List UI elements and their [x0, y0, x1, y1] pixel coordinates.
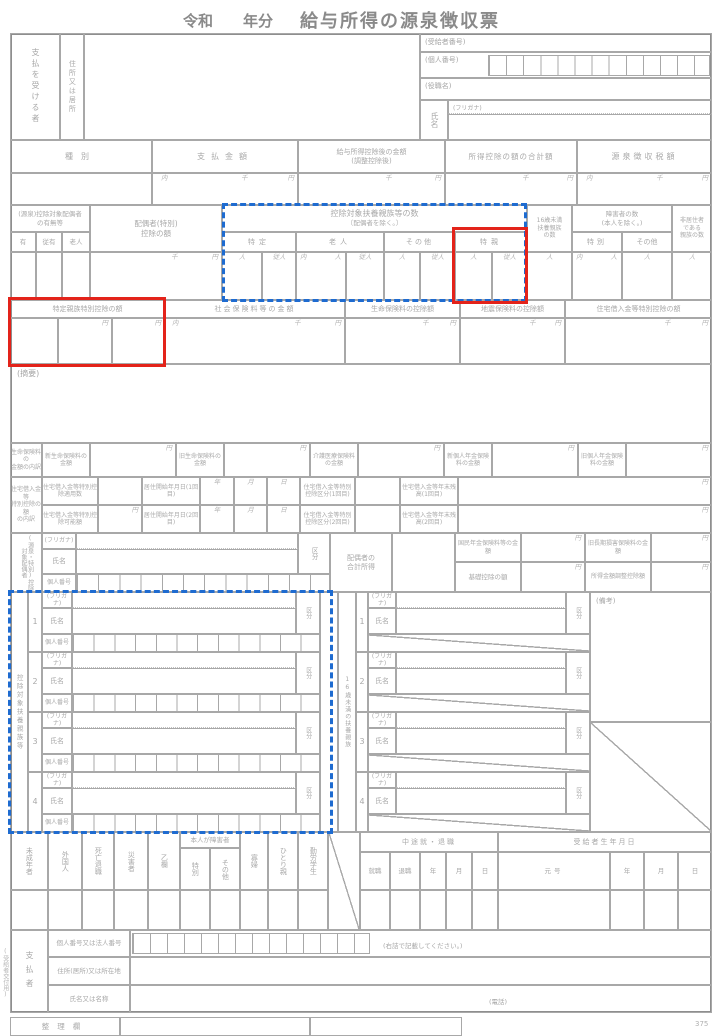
housing-balance2-cell[interactable]: 円 [458, 505, 712, 533]
payer-name-field[interactable]: (電話) [130, 985, 712, 1013]
flag-disaster-cell[interactable] [114, 890, 148, 930]
remarks-label: (摘要) [17, 368, 39, 379]
sen-marker: 千 [171, 254, 178, 261]
spouse-personal-no-digits[interactable] [76, 574, 330, 592]
new-annuity-insurance-cell[interactable]: 円 [492, 443, 578, 477]
dependent-count-header: 控除対象扶養親族等の数 〔配偶者を除く。〕 [222, 205, 527, 232]
flag-widow-cell[interactable] [240, 890, 268, 930]
under16-row-num: 1 [356, 592, 368, 652]
housing-kubun2-label: 住宅借入金等特別控除区分(2回目) [300, 505, 355, 533]
nin-marker: 人 [611, 254, 618, 261]
midway-day-cell[interactable] [472, 890, 498, 930]
spouse-presence-line2: の有無等 [37, 219, 63, 227]
page-title: 給与所得の源泉徴収票 [300, 7, 500, 33]
uchi-marker: 内 [300, 254, 307, 261]
nin-marker: 人 [399, 254, 406, 261]
nonresident-count-cell[interactable]: 人 [672, 252, 712, 300]
yen-marker: 円 [702, 564, 709, 571]
old-annuity-insurance-cell[interactable]: 円 [626, 443, 712, 477]
yen-marker: 円 [102, 320, 109, 327]
payer-number-digits[interactable] [132, 933, 370, 954]
spouse-total-income-label: 配偶者の 合計所得 [330, 533, 392, 592]
flag-working-student-cell[interactable] [298, 890, 328, 930]
nin-marker: 人 [689, 254, 696, 261]
yen-marker: 円 [335, 320, 342, 327]
disabled-line2: (本人を除く。) [602, 219, 643, 227]
under16-row-num: 3 [356, 712, 368, 772]
junin-marker: 従人 [503, 254, 516, 261]
under16-count-cell[interactable]: 人 [527, 252, 572, 300]
midway-retired-cell[interactable] [390, 890, 420, 930]
housing-balance1-cell[interactable]: 円 [458, 477, 712, 505]
sen-marker: 千 [385, 175, 392, 182]
under16-name-label: 氏名 [368, 728, 396, 754]
uchi-marker: 内 [161, 175, 168, 182]
under16-kubun-cell[interactable]: 区分 [566, 712, 590, 754]
under16-name-field[interactable] [396, 788, 566, 814]
old-longterm-insurance-cell[interactable]: 円 [651, 533, 712, 562]
yen-marker: 円 [435, 175, 442, 182]
tokutei-shinzoku-deduction-cell1[interactable] [10, 318, 58, 364]
flag-self-disabled-tokubetsu-cell[interactable] [180, 890, 210, 930]
dependent-furigana-field[interactable] [72, 592, 296, 608]
payer-number-note: (右詰で記載してください。) [383, 940, 462, 950]
col-withholding-header: 源泉徴収税額 [577, 140, 712, 173]
dependent-personal-no-digits[interactable] [72, 754, 320, 772]
housing-side-line1: 住宅借入金等 [11, 486, 41, 501]
yen-marker: 円 [450, 320, 457, 327]
residence1-month-cell[interactable]: 月 [234, 477, 267, 505]
remarks-area[interactable]: (摘要) [10, 364, 712, 443]
payee-furigana-field[interactable]: (フリガナ) [448, 100, 712, 114]
under16-name-field[interactable] [396, 668, 566, 694]
type-value-cell[interactable] [10, 173, 152, 205]
uchi-marker: 内 [576, 254, 583, 261]
flag-death-retirement-label: 死亡退職 [82, 832, 114, 890]
flag-minor-label: 未成年者 [10, 832, 48, 890]
payee-side-label: 支払を受ける者 [10, 33, 60, 140]
payment-value-cell[interactable]: 内 千 円 [152, 173, 298, 205]
housing-breakdown-side: 住宅借入金等 特別控除の額 の内訳 [10, 477, 42, 533]
dependent-personal-no-label: 個人番号 [42, 694, 72, 712]
housing-possible-amount-label: 住宅借入金等特別控除可能額 [42, 505, 98, 533]
dependent-row-num: 2 [28, 652, 42, 712]
dependent-furigana-field[interactable] [72, 712, 296, 728]
personal-number-digits[interactable] [488, 55, 710, 76]
uchi-marker: 内 [586, 175, 593, 182]
payer-number-label: 個人番号又は法人番号 [48, 930, 130, 957]
withholding-value-cell[interactable]: 内 千 円 [577, 173, 712, 205]
tokutei-shinzoku-deduction-cell2[interactable]: 円 [58, 318, 112, 364]
national-pension-label: 国民年金保険料等の金額 [455, 533, 521, 562]
recipient-number-label: (受給者番号) [425, 37, 465, 47]
dependent-kubun-cell[interactable]: 区分 [296, 652, 320, 694]
dependents-gap-column [320, 592, 338, 832]
under16-line1: 16歳未満 [537, 217, 563, 225]
spouse-total-income-cell[interactable] [392, 533, 455, 592]
sonota-junin-cell[interactable]: 従人 [420, 252, 455, 300]
biko-label: (備考) [596, 596, 615, 606]
disabled-tokubetsu-cell[interactable]: 内 人 [572, 252, 622, 300]
junin-marker: 従人 [359, 254, 372, 261]
housing-loan-deduction-header: 住宅借入金等特別控除の額 [565, 300, 712, 318]
form-code: 375 [695, 1020, 708, 1028]
nin-marker: 人 [644, 254, 651, 261]
spouse-juyu-cell[interactable] [36, 252, 62, 300]
dependent-kubun-cell[interactable]: 区分 [296, 772, 320, 814]
yen-marker: 円 [702, 535, 709, 542]
spouse-name-field[interactable] [76, 549, 298, 574]
col-type-header: 種別 [10, 140, 152, 173]
dependent-row-num: 3 [28, 712, 42, 772]
flag-otsuran-cell[interactable] [148, 890, 180, 930]
tokutei-shinzoku-nin-cell[interactable]: 人 [455, 252, 492, 300]
dependent-personal-no-digits[interactable] [72, 634, 320, 652]
under16-name-label: 氏名 [368, 608, 396, 634]
nonresident-line3: 親族の数 [680, 232, 704, 240]
national-pension-cell[interactable]: 円 [521, 533, 585, 562]
housing-loan-deduction-cell[interactable]: 千 円 [565, 318, 712, 364]
tokutei-junin-cell[interactable]: 従人 [262, 252, 296, 300]
birthdate-year-cell[interactable] [610, 890, 644, 930]
birthdate-month-label: 月 [644, 852, 678, 890]
spouse-kubun-cell[interactable]: 区分 [298, 533, 330, 574]
new-annuity-insurance-label: 新個人年金保険料の金額 [444, 443, 492, 477]
housing-possible-amount-cell[interactable]: 円 [98, 505, 142, 533]
dependent-furigana-field[interactable] [72, 772, 296, 788]
day-marker: 日 [280, 479, 287, 486]
disabled-sonota-label: その他 [622, 232, 672, 252]
flag-death-retirement-cell[interactable] [82, 890, 114, 930]
disabled-count-header: 障害者の数 (本人を除く。) [572, 205, 672, 232]
spouse-deduction-line2: 控除の額 [141, 229, 171, 238]
sonota-col-label: その他 [384, 232, 455, 252]
col-after-deduction-header: 給与所得控除後の金額 (調整控除後) [298, 140, 445, 173]
birthdate-year-label: 年 [610, 852, 644, 890]
old-life-insurance-label: 旧生命保険料の金額 [176, 443, 224, 477]
under16-furigana-field[interactable] [396, 712, 566, 728]
spouse-detail-side: (源泉・特別)控除対象配偶者 [10, 533, 42, 592]
role-label: (役職名) [425, 81, 451, 91]
social-insurance-header: 社会保険料等の金額 [165, 300, 345, 318]
seiri-cell-2[interactable] [310, 1017, 462, 1036]
midway-header: 中途就・退職 [360, 832, 498, 852]
residence-start-date1-label: 居住開始年月日(1回目) [142, 477, 200, 505]
residence2-month-cell[interactable]: 月 [234, 505, 267, 533]
housing-side-line2: 特別控除の額 [11, 501, 41, 516]
year-marker: 年 [214, 507, 221, 514]
sen-marker: 千 [241, 175, 248, 182]
birthdate-day-label: 日 [678, 852, 712, 890]
spouse-name-label: 氏名 [42, 549, 76, 574]
birthdate-month-cell[interactable] [644, 890, 678, 930]
biko-area[interactable]: (備考) [590, 592, 712, 722]
flag-self-disabled-header: 本人が障害者 [180, 832, 240, 848]
dependent-kubun-cell[interactable]: 区分 [296, 592, 320, 634]
life-insurance-breakdown-side: 生命保険料の 金額の内訳 [10, 443, 42, 477]
midway-month-cell[interactable] [446, 890, 472, 930]
spouse-deduction-value-cell[interactable]: 千 円 [90, 252, 222, 300]
yen-marker: 円 [434, 445, 441, 452]
dependent-name-label: 氏名 [42, 728, 72, 754]
birthdate-header: 受給者生年月日 [498, 832, 712, 852]
yen-marker: 円 [300, 445, 307, 452]
dependent-count-subtitle: 〔配偶者を除く。〕 [347, 219, 402, 227]
under16-name-field[interactable] [396, 608, 566, 634]
birthdate-era-label: 元号 [498, 852, 610, 890]
under16-furigana-label: (フリガナ) [368, 592, 396, 608]
rojin-label: 老人 [62, 232, 90, 252]
payer-name-label: 氏名又は名称 [48, 985, 130, 1013]
dependent-furigana-label: (フリガナ) [42, 652, 72, 668]
dependent-name-field[interactable] [72, 728, 296, 754]
dependent-name-field[interactable] [72, 788, 296, 814]
new-life-insurance-cell[interactable]: 円 [90, 443, 176, 477]
payee-name-field[interactable] [448, 114, 712, 140]
yen-marker: 円 [702, 175, 709, 182]
junin-marker: 従人 [431, 254, 444, 261]
care-medical-insurance-label: 介護医療保険料の金額 [310, 443, 358, 477]
dependent-name-label: 氏名 [42, 788, 72, 814]
yen-marker: 円 [555, 320, 562, 327]
yen-marker: 円 [568, 445, 575, 452]
payer-address-field[interactable] [130, 957, 712, 985]
uchi-marker: 内 [172, 320, 179, 327]
under16-row-num: 4 [356, 772, 368, 832]
under16-furigana-label: (フリガナ) [368, 712, 396, 728]
housing-side-line3: の内訳 [17, 516, 35, 524]
flag-foreigner-cell[interactable] [48, 890, 82, 930]
under16-furigana-field[interactable] [396, 772, 566, 788]
residence-start-date2-label: 居住開始年月日(2回目) [142, 505, 200, 533]
dependent-name-label: 氏名 [42, 668, 72, 694]
payer-tel-label: (電話) [489, 996, 507, 1006]
flag-disaster-label: 災害者 [114, 832, 148, 890]
nonresident-line1: 非居住者 [680, 217, 704, 225]
day-marker: 日 [280, 507, 287, 514]
recipient-number-field[interactable]: (受給者番号) [420, 33, 712, 52]
yu-label: 有 [10, 232, 36, 252]
role-field[interactable]: (役職名) [420, 78, 712, 100]
dependent-personal-no-digits[interactable] [72, 694, 320, 712]
sen-marker: 千 [522, 175, 529, 182]
flag-working-student-label: 勤労学生 [298, 832, 328, 890]
yen-marker: 円 [702, 479, 709, 486]
dependent-name-field[interactable] [72, 608, 296, 634]
dependents-side-label: 控除対象扶養親族等 [10, 592, 28, 832]
personal-number-label: (個人番号) [425, 55, 458, 65]
under16-furigana-field[interactable] [396, 592, 566, 608]
payee-furigana-label: (フリガナ) [453, 103, 482, 112]
disabled-sonota-cell[interactable]: 人 [622, 252, 672, 300]
old-annuity-insurance-label: 旧個人年金保険料の金額 [578, 443, 626, 477]
basic-deduction-label: 基礎控除の額 [455, 562, 521, 592]
dependent-name-label: 氏名 [42, 608, 72, 634]
old-longterm-insurance-label: 旧長期損害保険料の金額 [585, 533, 651, 562]
yen-marker: 円 [702, 445, 709, 452]
yen-marker: 円 [288, 175, 295, 182]
tokutei-shinzoku-col-label: 特親 [455, 232, 527, 252]
spouse-presence-line1: (源泉)控除対象配偶者 [18, 210, 82, 218]
nin-marker: 人 [546, 254, 553, 261]
after-deduction-value-cell[interactable]: 千 円 [298, 173, 445, 205]
juyu-label: 従有 [36, 232, 62, 252]
copy-note: (受給者交付用) [0, 933, 10, 1013]
title-era: 令和 [183, 10, 213, 31]
flag-otsuran-label: 乙欄 [148, 832, 180, 890]
housing-apply-count-cell[interactable] [98, 477, 142, 505]
residence1-day-cell[interactable]: 日 [267, 477, 300, 505]
birthdate-day-cell[interactable] [678, 890, 712, 930]
flag-single-parent-cell[interactable] [268, 890, 298, 930]
residence1-year-cell[interactable]: 年 [200, 477, 234, 505]
yen-marker: 円 [702, 507, 709, 514]
flag-self-disabled-sonota-cell[interactable] [210, 890, 240, 930]
crossed-corner-cell [590, 722, 712, 832]
tokutei-shinzoku-deduction-header: 特定親族特別控除の額 [10, 300, 165, 318]
dependent-furigana-field[interactable] [72, 652, 296, 668]
flag-self-disabled-tokubetsu: 特別 [180, 848, 210, 890]
spouse-personal-no-label: 個人番号 [42, 574, 76, 592]
payer-side-label: 支払者 [10, 930, 48, 1013]
under16-row-num: 2 [356, 652, 368, 712]
sen-marker: 千 [422, 320, 429, 327]
rojin-junin-cell[interactable]: 従人 [346, 252, 384, 300]
flags-crossed-cell [328, 832, 360, 930]
yen-marker: 円 [155, 320, 162, 327]
under16-crossed-cell [368, 634, 590, 652]
yen-marker: 円 [567, 175, 574, 182]
spouse-presence-header: (源泉)控除対象配偶者 の有無等 [10, 205, 90, 232]
payee-address-field[interactable] [84, 33, 420, 140]
housing-kubun2-cell[interactable] [355, 505, 400, 533]
midway-day-label: 日 [472, 852, 498, 890]
under16-crossed-cell [368, 694, 590, 712]
spouse-furigana-label: (フリガナ) [42, 533, 76, 549]
earthquake-insurance-cell[interactable]: 千 円 [460, 318, 565, 364]
flag-foreigner-label: 外国人 [48, 832, 82, 890]
midway-month-label: 月 [446, 852, 472, 890]
title-year-suffix: 年分 [243, 10, 273, 31]
payer-address-label: 住所(居所)又は所在地 [48, 957, 130, 985]
yen-marker: 円 [212, 254, 219, 261]
dependent-personal-no-label: 個人番号 [42, 754, 72, 772]
nin-marker: 人 [239, 254, 246, 261]
dependent-furigana-label: (フリガナ) [42, 592, 72, 608]
birthdate-era-cell[interactable] [498, 890, 610, 930]
yen-marker: 円 [575, 564, 582, 571]
care-medical-insurance-cell[interactable]: 円 [358, 443, 444, 477]
rojin-nin-cell[interactable]: 内 人 [296, 252, 346, 300]
rojin-col-label: 老人 [296, 232, 384, 252]
residence2-year-cell[interactable]: 年 [200, 505, 234, 533]
housing-kubun1-label: 住宅借入金等特別控除区分(1回目) [300, 477, 355, 505]
nin-marker: 人 [470, 254, 477, 261]
under16-furigana-field[interactable] [396, 652, 566, 668]
under16-name-label: 氏名 [368, 668, 396, 694]
new-life-insurance-label: 新生命保険料の金額 [42, 443, 90, 477]
midway-joined-cell[interactable] [360, 890, 390, 930]
old-life-insurance-cell[interactable]: 円 [224, 443, 310, 477]
spouse-yu-cell[interactable] [10, 252, 36, 300]
dependent-furigana-label: (フリガナ) [42, 772, 72, 788]
dependent-personal-no-label: 個人番号 [42, 814, 72, 832]
nin-marker: 人 [335, 254, 342, 261]
spouse-rojin-cell[interactable] [62, 252, 90, 300]
under16-name-field[interactable] [396, 728, 566, 754]
sen-marker: 千 [294, 320, 301, 327]
residence2-day-cell[interactable]: 日 [267, 505, 300, 533]
life-breakdown-line2: 金額の内訳 [11, 464, 41, 472]
under16-line3: の数 [543, 232, 555, 240]
yen-marker: 円 [702, 320, 709, 327]
income-adjustment-cell[interactable]: 円 [651, 562, 712, 592]
life-breakdown-line1: 生命保険料の [11, 449, 41, 464]
junin-marker: 従人 [273, 254, 286, 261]
under16-kubun-cell[interactable]: 区分 [566, 652, 590, 694]
after-deduction-line1: 給与所得控除後の金額 [337, 148, 407, 157]
payee-address-label: 住所又は居所 [60, 33, 84, 140]
after-deduction-line2: (調整控除後) [351, 157, 391, 166]
tokutei-shinzoku-deduction-cell3[interactable]: 円 [112, 318, 165, 364]
spouse-furigana-field[interactable] [76, 533, 298, 549]
sen-marker: 千 [664, 320, 671, 327]
midway-year-label: 年 [420, 852, 446, 890]
under16-name-label: 氏名 [368, 788, 396, 814]
income-adjustment-label: 所得金額調整控除額 [585, 562, 651, 592]
flag-widow-label: 寡婦 [240, 832, 268, 890]
tokutei-nin-cell[interactable]: 人 [222, 252, 262, 300]
tokutei-shinzoku-junin-cell[interactable]: 従人 [492, 252, 527, 300]
col-total-deduction-header: 所得控除の額の合計額 [445, 140, 577, 173]
disabled-line1: 障害者の数 [606, 210, 639, 218]
yen-marker: 円 [166, 445, 173, 452]
under16-furigana-label: (フリガナ) [368, 652, 396, 668]
under16-furigana-label: (フリガナ) [368, 772, 396, 788]
basic-deduction-cell[interactable]: 円 [521, 562, 585, 592]
dependent-row-num: 1 [28, 592, 42, 652]
dependent-name-field[interactable] [72, 668, 296, 694]
dependent-kubun-cell[interactable]: 区分 [296, 712, 320, 754]
under16-header: 16歳未満 扶養親族 の数 [527, 205, 572, 252]
month-marker: 月 [247, 507, 254, 514]
housing-kubun1-cell[interactable] [355, 477, 400, 505]
total-deduction-value-cell[interactable]: 千 円 [445, 173, 577, 205]
life-insurance-deduction-cell[interactable]: 千 円 [345, 318, 460, 364]
year-marker: 年 [214, 479, 221, 486]
housing-balance1-label: 住宅借入金等年末残高(1回目) [400, 477, 458, 505]
midway-year-cell[interactable] [420, 890, 446, 930]
month-marker: 月 [247, 479, 254, 486]
under16-kubun-cell[interactable]: 区分 [566, 592, 590, 634]
seiri-cell-1[interactable] [120, 1017, 310, 1036]
spouse-deduction-line1: 配偶者(特別) [134, 219, 177, 228]
dependent-personal-no-label: 個人番号 [42, 634, 72, 652]
flag-self-disabled-sonota: その他 [210, 848, 240, 890]
under16-kubun-cell[interactable]: 区分 [566, 772, 590, 814]
under16-crossed-cell [368, 814, 590, 832]
life-insurance-deduction-header: 生命保険料の控除額 [345, 300, 460, 318]
midway-joined-label: 就職 [360, 852, 390, 890]
nonresident-header: 非居住者 である 親族の数 [672, 205, 712, 252]
housing-balance2-label: 住宅借入金等年末残高(2回目) [400, 505, 458, 533]
col-payment-header: 支払金額 [152, 140, 298, 173]
dependent-personal-no-digits[interactable] [72, 814, 320, 832]
sonota-nin-cell[interactable]: 人 [384, 252, 420, 300]
payee-name-label: 氏名 [420, 100, 448, 140]
flag-minor-cell[interactable] [10, 890, 48, 930]
social-insurance-cell[interactable]: 内 千 円 [165, 318, 345, 364]
